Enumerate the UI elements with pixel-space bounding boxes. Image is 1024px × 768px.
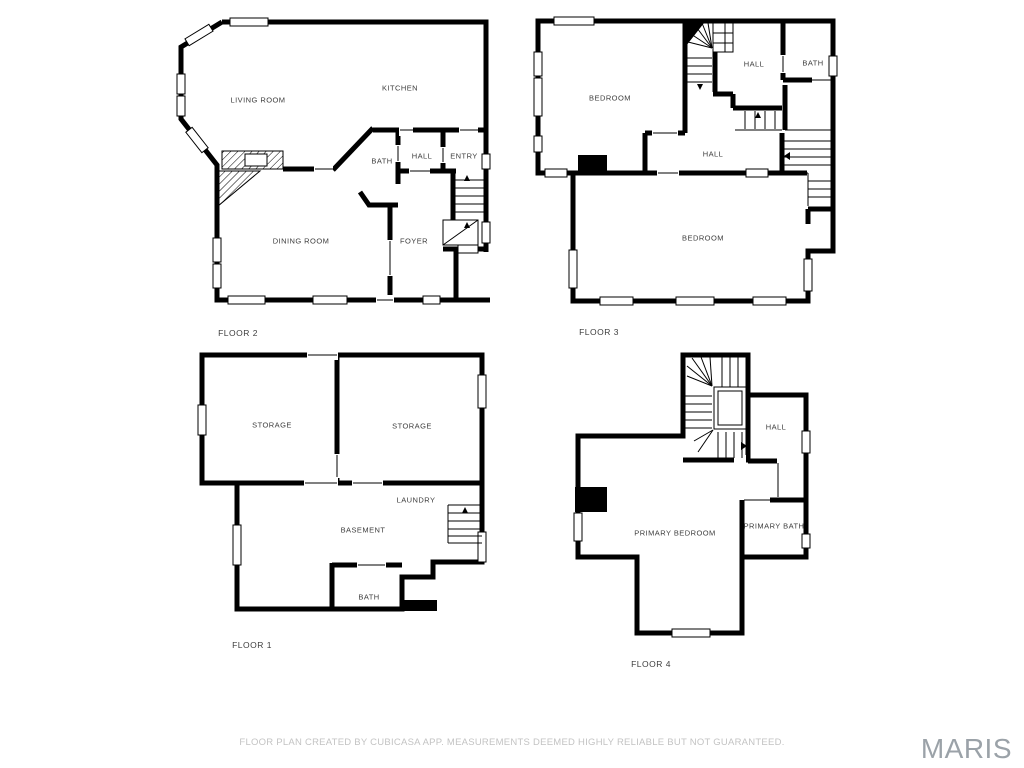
floor4-stairs <box>685 357 747 458</box>
room-label-living-room: LIVING ROOM <box>231 96 286 105</box>
floor2-plan <box>177 18 490 305</box>
room-label-foyer: FOYER <box>400 237 428 246</box>
room-label-storage-1: STORAGE <box>252 421 292 430</box>
room-label-bath-f1: BATH <box>358 593 379 602</box>
fireplace <box>218 151 283 206</box>
floor-label-4: FLOOR 4 <box>631 659 671 669</box>
room-label-primary-bath: PRIMARY BATH <box>744 522 805 531</box>
floor-label-3: FLOOR 3 <box>579 327 619 337</box>
floor1-stairs <box>448 505 482 543</box>
room-label-laundry: LAUNDRY <box>397 496 436 505</box>
room-label-dining-room: DINING ROOM <box>273 237 330 246</box>
room-label-entry: ENTRY <box>450 152 478 161</box>
chimney <box>578 155 607 173</box>
room-label-bedroom-2: BEDROOM <box>682 234 724 243</box>
room-label-primary-bedroom: PRIMARY BEDROOM <box>634 529 716 538</box>
floor3-mini-stairs <box>735 111 782 130</box>
floor-label-1: FLOOR 1 <box>232 640 272 650</box>
room-label-basement: BASEMENT <box>341 526 386 535</box>
room-label-hall-upper: HALL <box>744 60 765 69</box>
floor3-plan <box>534 17 837 305</box>
room-label-bath-f3: BATH <box>802 59 823 68</box>
room-label-hall-lower: HALL <box>703 150 724 159</box>
floorplan-graphic <box>0 0 1024 768</box>
room-label-kitchen: KITCHEN <box>382 84 418 93</box>
floor-label-2: FLOOR 2 <box>218 328 258 338</box>
floor4-plan <box>574 355 810 637</box>
disclaimer-text: FLOOR PLAN CREATED BY CUBICASA APP. MEAS… <box>0 737 1024 748</box>
room-label-storage-2: STORAGE <box>392 422 432 431</box>
chimney <box>575 487 607 512</box>
floor3-winder-stairs <box>686 23 733 90</box>
room-label-bedroom-1: BEDROOM <box>589 94 631 103</box>
floor1-plan <box>198 350 486 611</box>
room-label-hall-f2: HALL <box>412 152 433 161</box>
room-label-bath-f2: BATH <box>371 157 392 166</box>
wall-block <box>402 600 437 611</box>
floor3-down-stairs <box>784 141 833 206</box>
floorplan-page: LIVING ROOM KITCHEN BATH HALL ENTRY DINI… <box>0 0 1024 768</box>
floor2-stairs <box>443 180 486 245</box>
maris-watermark: MARIS <box>921 733 1012 765</box>
room-label-hall-f4: HALL <box>766 423 787 432</box>
